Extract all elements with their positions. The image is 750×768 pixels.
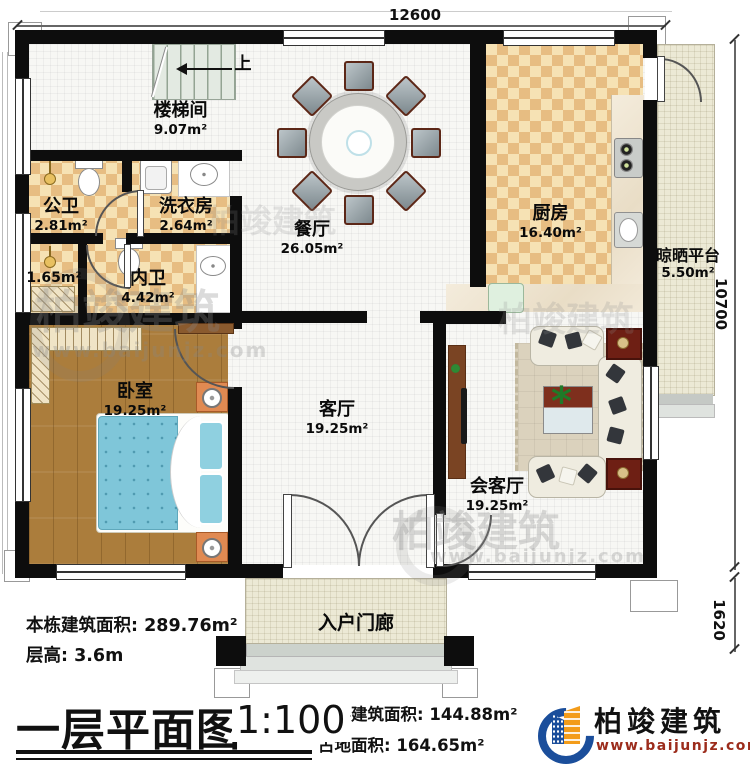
title-underline-thick [16, 750, 312, 754]
nightstand-bottom [196, 532, 228, 562]
room-label-bedroom: 卧室19.25m² [103, 381, 167, 419]
dimension-label-top: 12600 [370, 6, 460, 24]
room-label-kitchen: 厨房16.40m² [503, 203, 598, 241]
porch-column-right [444, 636, 474, 666]
tv-screen [461, 388, 467, 444]
dining-table-center [346, 130, 372, 156]
room-label-dining: 餐厅26.05m² [267, 219, 357, 257]
window-reception-bottom [468, 564, 596, 580]
exterior-trim-top [40, 11, 672, 12]
washing-machine-drum [145, 166, 167, 190]
public-bath-door-leaf [137, 190, 144, 237]
building-total-area-line: 本栋建筑面积: 289.76m² [26, 612, 238, 642]
kitchen-platform-door-leaf [657, 56, 665, 102]
nightstand-lamp-bottom [202, 538, 222, 558]
logo-website: www.baijunjz.com [596, 738, 750, 754]
entry-door-leaf-left [283, 494, 292, 568]
drawing-scale: 1:100 [232, 698, 350, 742]
stairs-up-label: 上 [232, 54, 254, 74]
dimension-label-porch: 1620 [710, 594, 728, 646]
room-label-inner-bath: 内卫4.42m² [108, 268, 188, 306]
exterior-step-right [630, 580, 678, 612]
tv-cabinet-plant [451, 364, 460, 373]
dining-chair-7 [344, 61, 374, 91]
stove-burner-1 [620, 143, 633, 156]
floor-plan-canvas: 上 [0, 0, 750, 768]
room-label-public-bath: 公卫2.81m² [23, 196, 99, 234]
land-area-value: 164.65m² [396, 736, 484, 755]
wall-bath-divider [122, 150, 132, 192]
room-label-porch: 入户门廊 [304, 612, 408, 635]
dimension-line-top [16, 25, 666, 27]
side-table-bottom-decor [617, 467, 629, 479]
public-bath-light-cord [49, 160, 51, 174]
wall-bedroom-right-b [228, 387, 242, 564]
entry-door-leaf-right [426, 494, 435, 568]
kitchen-pantry-floor [446, 284, 643, 312]
window-bedroom-left [15, 388, 31, 502]
stove-burner-2 [620, 159, 633, 172]
room-label-living: 客厅19.25m² [295, 399, 379, 437]
kitchen-sink-basin [619, 218, 638, 242]
dining-chair-1 [411, 128, 441, 158]
wall-living-dining [237, 311, 367, 323]
wardrobe [48, 327, 142, 351]
window-kitchen-top [503, 30, 615, 46]
wall-living-reception [433, 311, 446, 515]
inner-bath-sink [200, 256, 226, 276]
window-bedroom-bottom [56, 564, 186, 580]
floor-area-value: 144.88m² [429, 705, 517, 724]
wall-bath-right [230, 196, 242, 314]
wall-kitchen-left [470, 44, 486, 287]
bed-pillow-2 [198, 473, 224, 525]
exterior-trim-left [2, 52, 3, 574]
drying-platform-edge [657, 394, 713, 404]
title-underline-thin [16, 758, 312, 760]
laundry-sink [190, 163, 218, 186]
porch-step-3 [234, 670, 458, 684]
exterior-trim-left2 [7, 52, 8, 574]
window-reception-right [643, 366, 659, 460]
room-label-drying-platform: 晾晒平台5.50m² [638, 246, 738, 281]
closet-shelf-hatch [31, 286, 75, 312]
logo-building-orange [564, 706, 580, 744]
page-title: 一层平面图 [16, 694, 241, 758]
closet-light [44, 256, 56, 268]
bed-mattress [98, 416, 178, 530]
wall-reception-top [446, 311, 506, 324]
floor-height-line: 层高: 3.6m [26, 642, 238, 672]
wall-right-a [643, 30, 657, 58]
room-label-reception: 会客厅19.25m² [453, 476, 541, 514]
window-stairwell-left [15, 78, 31, 175]
dining-chair-5 [277, 128, 307, 158]
building-info-block: 本栋建筑面积: 289.76m² 层高: 3.6m [26, 612, 238, 672]
stair-direction-arrowhead [176, 63, 187, 75]
public-bath-light [44, 173, 56, 185]
dimension-label-right: 10700 [712, 272, 730, 336]
nightstand-lamp-top [202, 388, 222, 408]
wall-right-c [643, 458, 657, 578]
bedroom-door-leaf [178, 323, 234, 334]
company-logo: 柏竣建筑 www.baijunjz.com [538, 700, 738, 760]
room-label-closet-area: 1.65m² [22, 270, 86, 287]
stair-direction-line [186, 68, 232, 70]
public-toilet-bowl [78, 168, 100, 196]
coffee-table-plant: * [551, 382, 572, 422]
dimension-line-right [734, 40, 736, 570]
wall-right-b [643, 100, 657, 366]
side-table-top-decor [617, 337, 629, 349]
drying-platform-edge2 [657, 404, 715, 418]
room-label-stairwell: 楼梯间9.07m² [133, 100, 228, 138]
floor-height-label: 层高: [26, 646, 68, 666]
floor-height-value: 3.6m [74, 646, 123, 666]
fridge [488, 283, 524, 313]
bed-pillow-1 [198, 421, 224, 471]
building-total-area-label: 本栋建筑面积: [26, 616, 138, 636]
building-total-area-value: 289.76m² [144, 616, 237, 636]
bedroom-left-closet [31, 327, 50, 404]
dimension-line-porch [734, 578, 736, 652]
room-label-laundry: 洗衣房2.64m² [146, 196, 226, 234]
window-dining-top [283, 30, 385, 46]
reception-door-leaf [436, 513, 444, 567]
logo-company-name: 柏竣建筑 [594, 700, 726, 740]
